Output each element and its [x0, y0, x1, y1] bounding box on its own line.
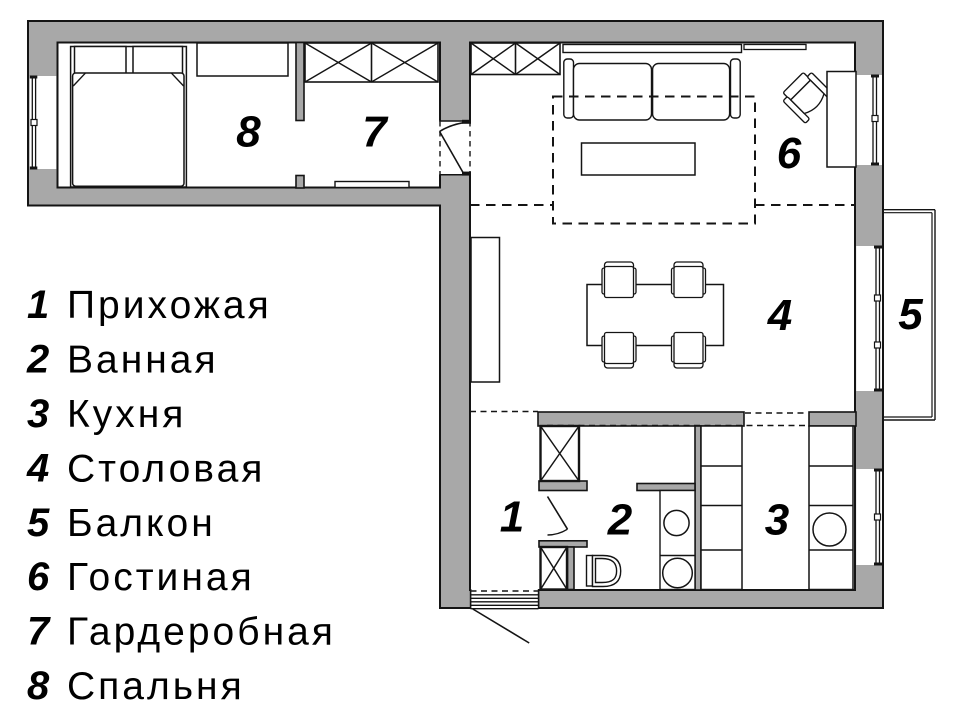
svg-text:8: 8	[27, 664, 50, 708]
svg-text:4: 4	[26, 447, 49, 491]
svg-text:7: 7	[362, 108, 389, 157]
svg-text:Гардеробная: Гардеробная	[67, 611, 336, 654]
svg-text:1: 1	[27, 283, 49, 327]
svg-text:5: 5	[27, 501, 50, 545]
svg-text:Ванная: Ванная	[67, 339, 219, 382]
svg-text:6: 6	[27, 555, 50, 599]
svg-text:3: 3	[27, 392, 49, 436]
svg-text:5: 5	[898, 290, 923, 339]
svg-text:2: 2	[26, 338, 49, 382]
svg-text:8: 8	[236, 108, 261, 157]
svg-text:Балкон: Балкон	[67, 502, 216, 545]
svg-text:Кухня: Кухня	[67, 393, 186, 436]
svg-text:2: 2	[607, 496, 633, 545]
svg-text:Столовая: Столовая	[67, 448, 265, 491]
svg-text:Гостиная: Гостиная	[67, 556, 255, 599]
svg-text:Прихожая: Прихожая	[67, 284, 272, 327]
svg-text:7: 7	[27, 610, 51, 654]
svg-text:Спальня: Спальня	[67, 665, 245, 708]
svg-text:4: 4	[767, 291, 792, 340]
svg-text:6: 6	[777, 129, 802, 178]
svg-text:1: 1	[500, 493, 524, 542]
svg-text:3: 3	[765, 496, 789, 545]
